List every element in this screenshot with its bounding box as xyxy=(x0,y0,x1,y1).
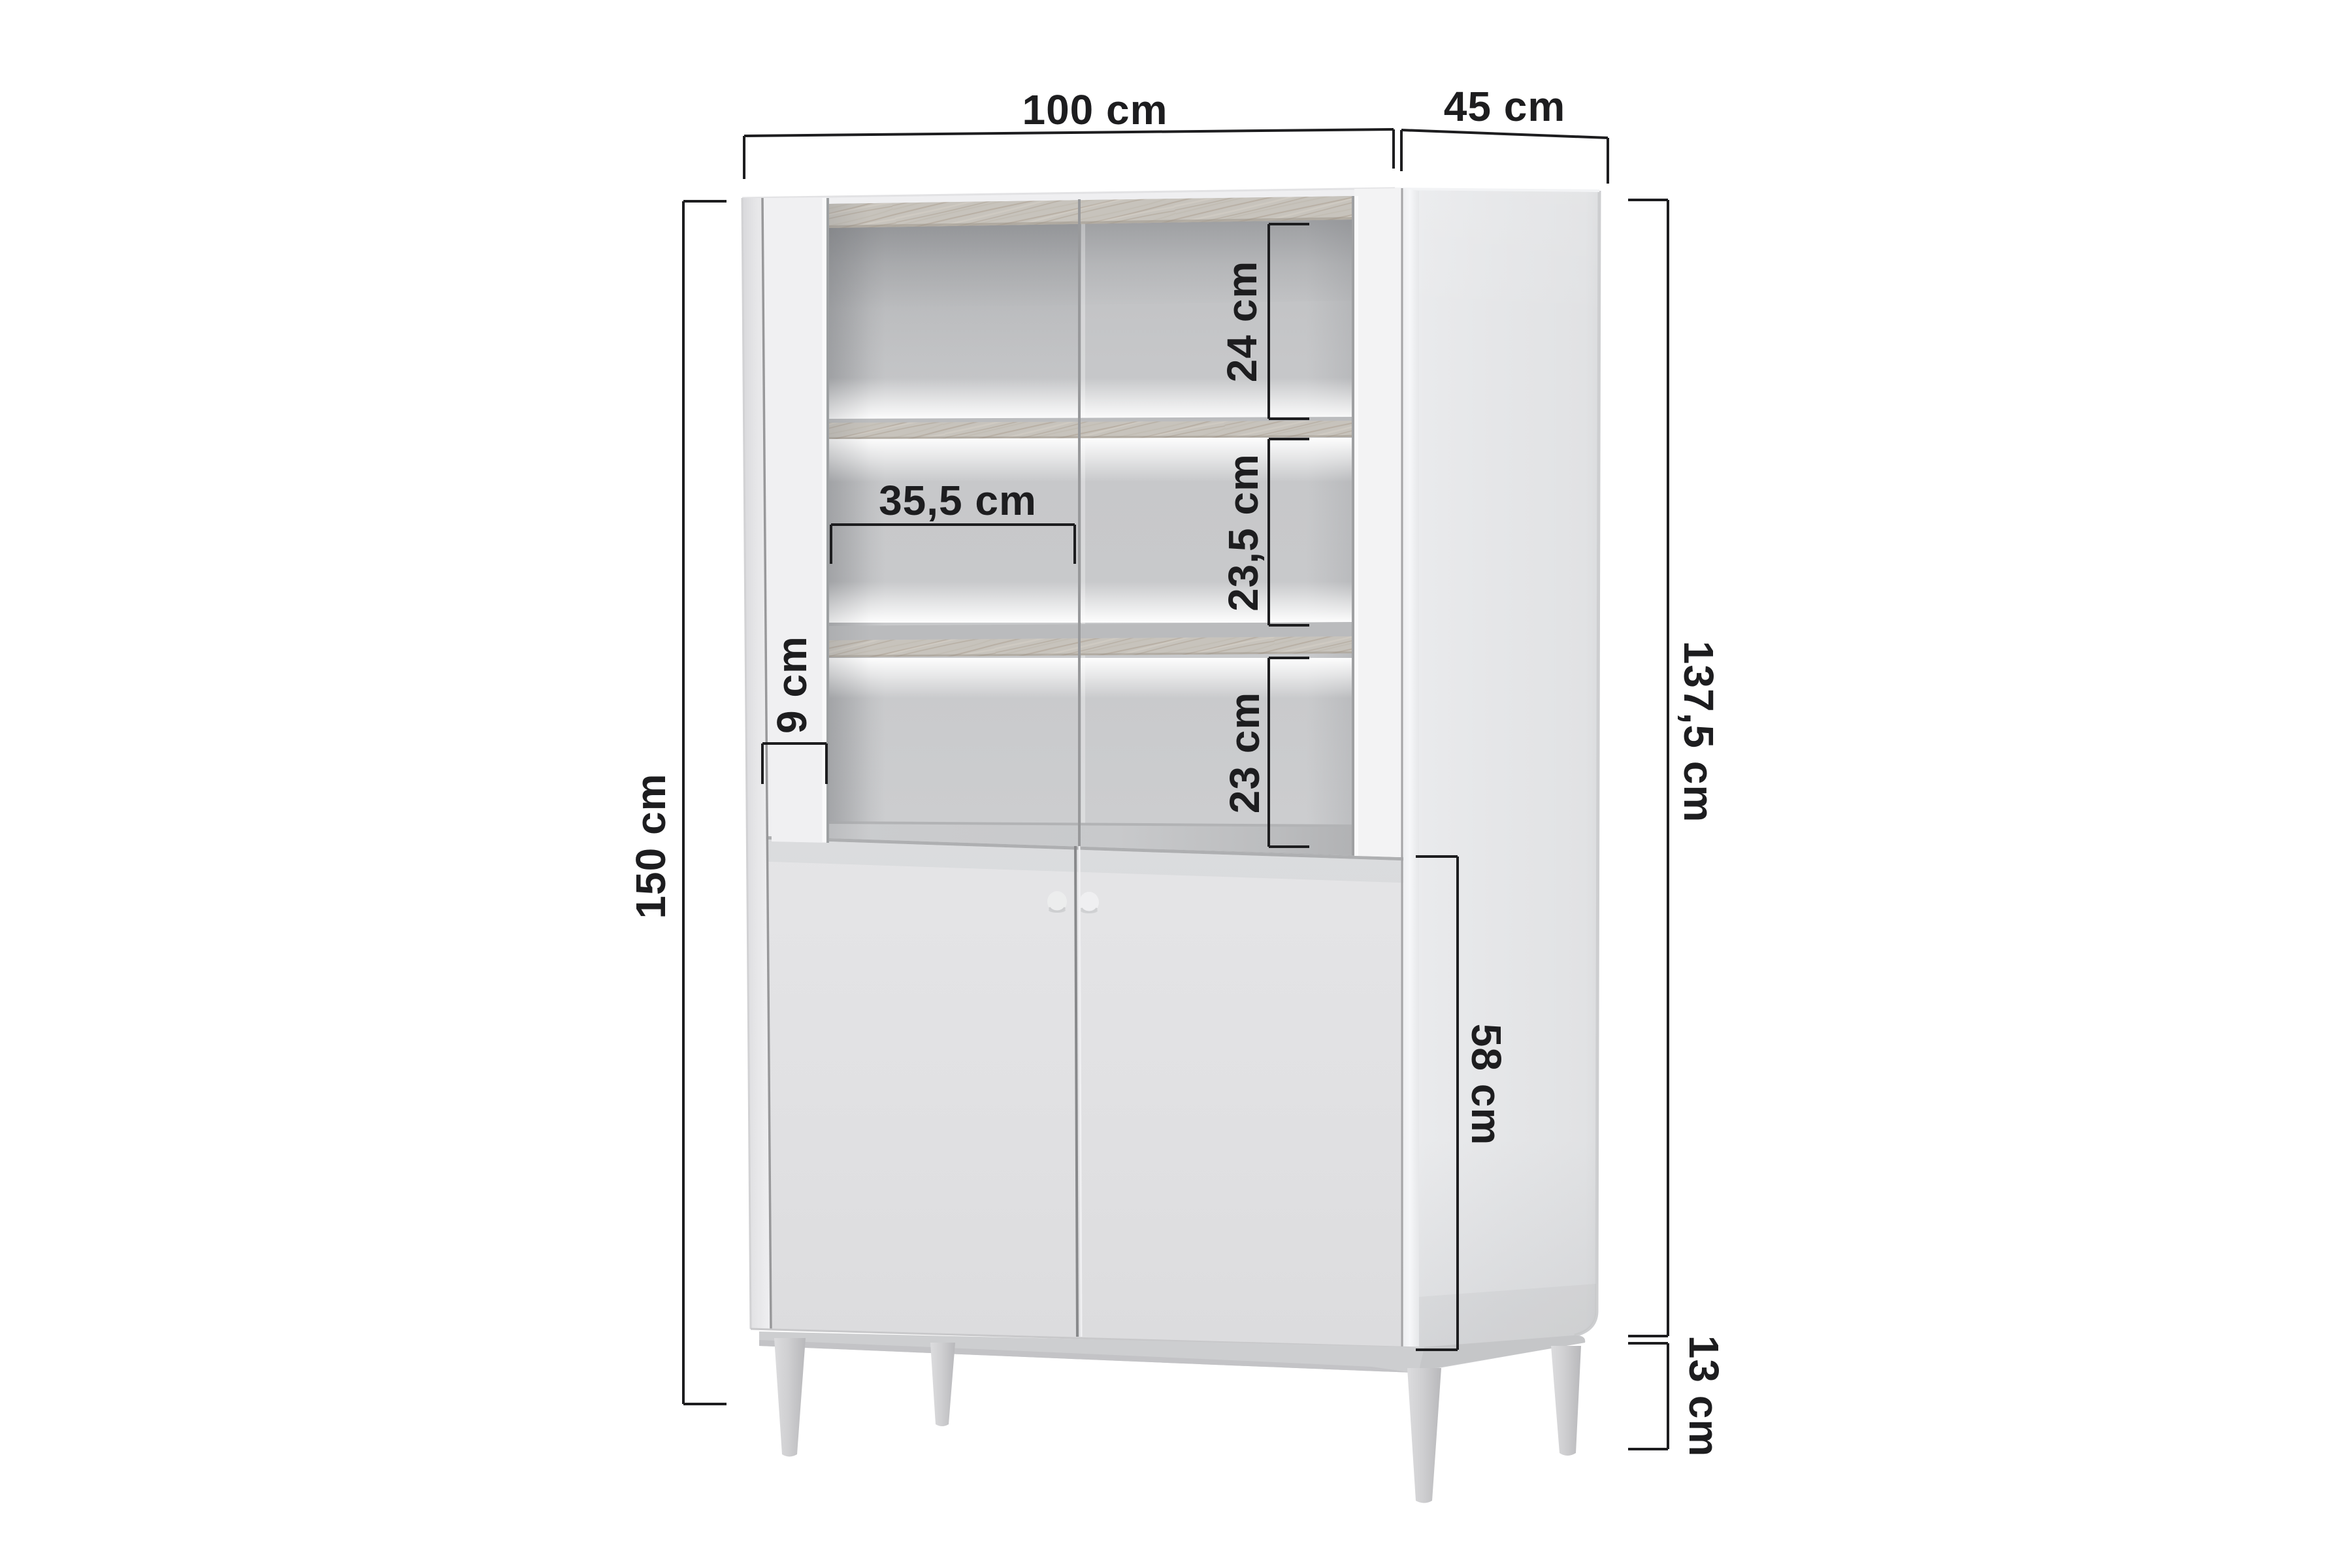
svg-text:13 cm: 13 cm xyxy=(1680,1335,1727,1457)
svg-text:23,5 cm: 23,5 cm xyxy=(1220,453,1267,612)
svg-text:137,5 cm: 137,5 cm xyxy=(1675,641,1722,823)
svg-text:58 cm: 58 cm xyxy=(1463,1024,1510,1145)
svg-text:100 cm: 100 cm xyxy=(1022,86,1168,133)
svg-text:9 cm: 9 cm xyxy=(768,636,815,734)
svg-text:150 cm: 150 cm xyxy=(627,773,674,919)
svg-text:23 cm: 23 cm xyxy=(1221,692,1268,813)
svg-text:24 cm: 24 cm xyxy=(1218,261,1266,382)
svg-text:45 cm: 45 cm xyxy=(1444,83,1565,130)
svg-text:35,5 cm: 35,5 cm xyxy=(879,477,1037,524)
